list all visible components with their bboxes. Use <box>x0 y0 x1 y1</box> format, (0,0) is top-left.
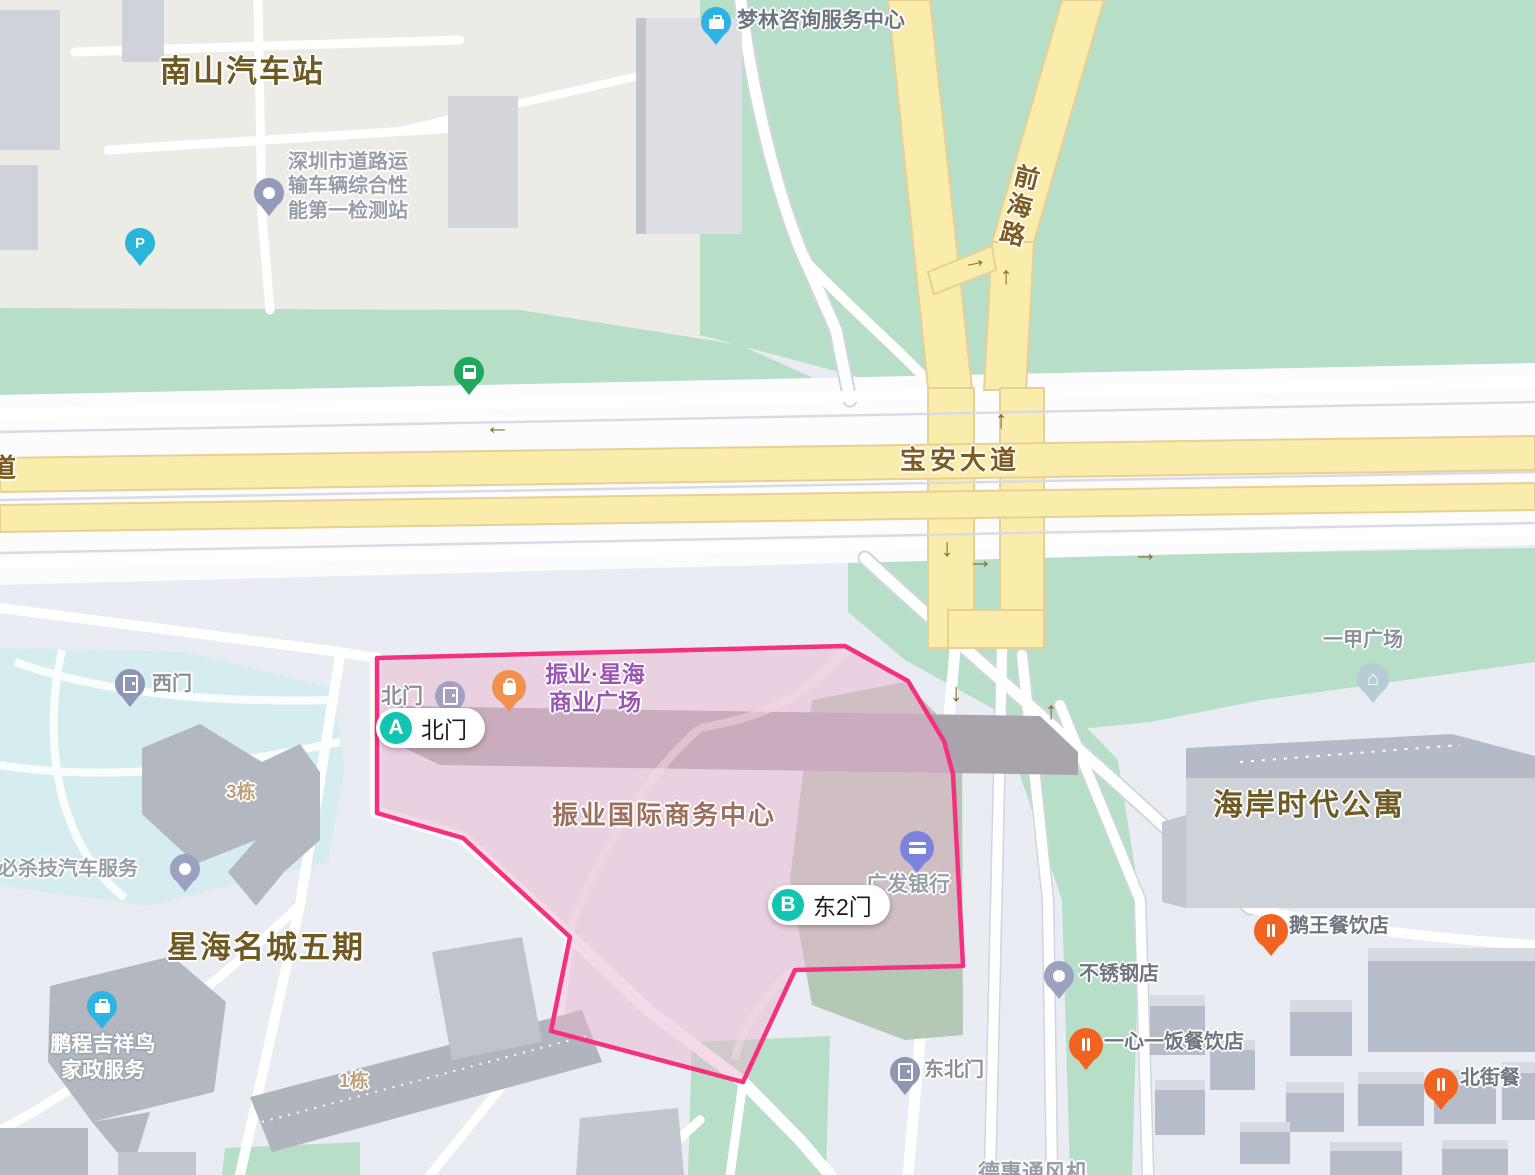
poi-label-beijie-restaurant[interactable]: 北街餐 <box>1460 1066 1520 1090</box>
marker-a-label: 北门 <box>421 711 467 745</box>
gate-marker-a[interactable]: A 北门 <box>376 708 485 748</box>
poi-label-yixinyifan-restaurant[interactable]: 一心一饭餐饮店 <box>1104 1030 1244 1054</box>
door-icon <box>443 687 458 705</box>
poi-label-menglin-consulting[interactable]: 梦林咨询服务中心 <box>737 8 905 34</box>
poi-label-dehui-partial: 德惠通风机 <box>978 1160 1088 1175</box>
traffic-arrow-right-icon: → <box>1133 541 1158 566</box>
parking-pin[interactable]: P <box>125 228 155 258</box>
traffic-arrow-left-icon: ← <box>485 414 510 439</box>
area-label-zhenye-intl-business-center: 振业国际商务中心 <box>552 800 776 832</box>
guangfa-bank-pin[interactable] <box>900 831 934 865</box>
map-canvas[interactable]: 南山汽车站 深圳市道路运 输车辆综合性 能第一检测站 梦林咨询服务中心 前海路 … <box>0 0 1535 1175</box>
marker-a-badge: A <box>380 712 412 744</box>
area-label-haian-apartment: 海岸时代公寓 <box>1213 788 1405 825</box>
area-label-building-1: 1栋 <box>339 1070 369 1093</box>
dot-icon <box>179 863 191 875</box>
bus-icon <box>463 365 476 379</box>
poi-label-stainless-steel-shop[interactable]: 不锈钢店 <box>1079 962 1159 986</box>
dot-icon <box>1053 970 1065 982</box>
poi-label-yijia-plaza[interactable]: 一甲广场 <box>1323 628 1403 652</box>
inspection-station-pin[interactable] <box>254 178 284 208</box>
map-base-layer <box>0 0 1535 1175</box>
ewang-restaurant-pin[interactable] <box>1254 914 1288 948</box>
area-label-xinghai-mingcheng: 星海名城五期 <box>167 929 365 967</box>
area-label-building-3: 3栋 <box>226 781 256 804</box>
road-label-partial: 道 <box>0 453 16 485</box>
poi-label-north-gate-small[interactable]: 北门 <box>381 684 423 710</box>
shopping-plaza-pin[interactable] <box>492 670 526 704</box>
pengcheng-briefcase-pin[interactable] <box>87 991 117 1021</box>
road-label-baoan-avenue: 宝安大道 <box>900 445 1020 477</box>
traffic-arrow-right-icon: → <box>960 246 990 276</box>
northeast-gate-door-pin[interactable] <box>890 1057 920 1087</box>
traffic-arrow-right-icon: → <box>968 548 993 573</box>
fork-spoon-icon <box>1434 1078 1448 1092</box>
poi-label-zhenye-xinghai-plaza[interactable]: 振业·星海 商业广场 <box>527 660 663 716</box>
yixinyifan-restaurant-pin[interactable] <box>1069 1028 1103 1062</box>
poi-label-northeast-gate[interactable]: 东北门 <box>924 1058 984 1082</box>
poi-label-west-gate[interactable]: 西门 <box>152 672 192 696</box>
menglin-briefcase-pin[interactable] <box>701 7 731 37</box>
marker-b-label: 东2门 <box>813 888 872 922</box>
briefcase-icon <box>709 19 724 29</box>
beijie-restaurant-pin[interactable] <box>1424 1068 1458 1102</box>
fork-spoon-icon <box>1264 924 1278 938</box>
west-gate-door-pin[interactable] <box>115 669 145 699</box>
traffic-arrow-up-icon: ↑ <box>1000 264 1013 289</box>
dot-icon <box>263 187 275 199</box>
gate-marker-b[interactable]: B 东2门 <box>768 885 890 925</box>
bus-stop-pin[interactable] <box>454 357 484 387</box>
poi-label-ewang-restaurant[interactable]: 鹅王餐饮店 <box>1289 914 1389 938</box>
traffic-arrow-up-icon: ↑ <box>1045 699 1058 724</box>
yijia-plaza-house-pin[interactable]: ⌂ <box>1357 663 1389 695</box>
fork-spoon-icon <box>1079 1038 1093 1052</box>
traffic-arrow-up-icon: ↑ <box>995 408 1008 433</box>
area-label-nanshan-bus-station: 南山汽车站 <box>160 53 325 91</box>
door-icon <box>898 1063 913 1081</box>
bank-card-icon <box>909 842 926 854</box>
poi-label-inspection-station[interactable]: 深圳市道路运 输车辆综合性 能第一检测站 <box>288 150 408 223</box>
north-gate-door-pin[interactable] <box>435 681 465 711</box>
bishaji-pin[interactable] <box>170 854 200 884</box>
briefcase-icon <box>95 1003 110 1013</box>
parking-icon: P <box>135 236 145 251</box>
house-icon: ⌂ <box>1367 669 1379 689</box>
poi-label-pengcheng-housekeeping[interactable]: 鹏程吉祥鸟 家政服务 <box>38 1032 168 1083</box>
stainless-steel-pin[interactable] <box>1044 961 1074 991</box>
traffic-arrow-down-icon: ↓ <box>950 681 963 706</box>
shopping-bag-icon <box>503 683 516 695</box>
door-icon <box>123 675 138 693</box>
traffic-arrow-down-icon: ↓ <box>941 536 954 561</box>
marker-b-badge: B <box>772 889 804 921</box>
poi-label-bishaji-auto[interactable]: 必杀技汽车服务 <box>0 857 138 881</box>
